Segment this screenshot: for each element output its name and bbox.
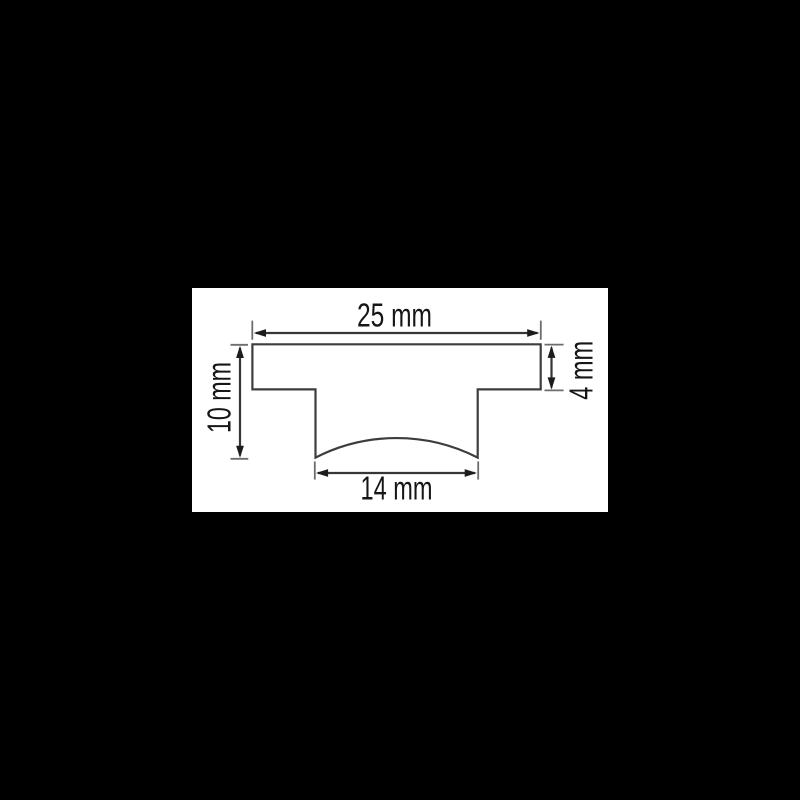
svg-text:10 mm: 10 mm (201, 362, 238, 433)
svg-text:4 mm: 4 mm (563, 341, 600, 400)
svg-text:14 mm: 14 mm (361, 470, 433, 507)
svg-text:25 mm: 25 mm (357, 297, 432, 334)
